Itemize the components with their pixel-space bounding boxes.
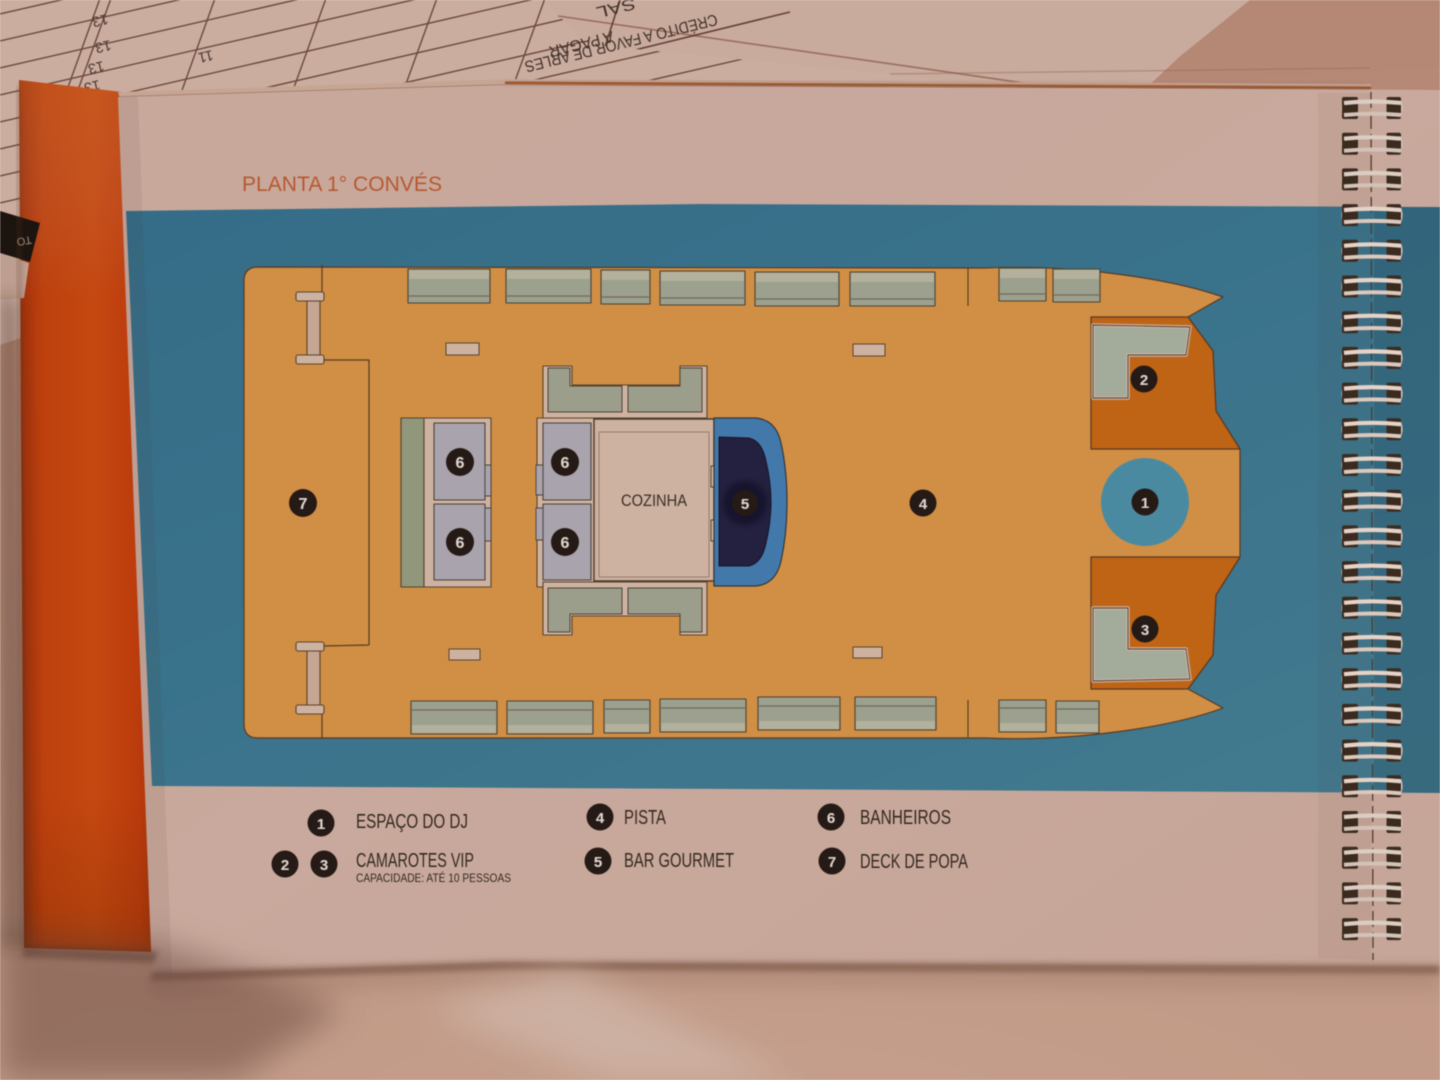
svg-text:7: 7 (828, 854, 836, 871)
svg-text:3: 3 (320, 857, 328, 874)
svg-text:5: 5 (741, 496, 749, 513)
svg-text:6: 6 (456, 455, 465, 472)
svg-text:6: 6 (456, 535, 465, 552)
svg-text:1: 1 (317, 816, 325, 833)
svg-text:5: 5 (594, 854, 602, 871)
svg-text:6: 6 (561, 455, 570, 472)
svg-text:4: 4 (919, 496, 928, 513)
svg-text:4: 4 (596, 810, 605, 827)
svg-text:2: 2 (281, 857, 289, 874)
svg-text:3: 3 (1141, 622, 1149, 639)
svg-text:1: 1 (1141, 495, 1149, 512)
svg-text:6: 6 (561, 535, 570, 552)
svg-text:2: 2 (1140, 372, 1148, 389)
svg-text:6: 6 (827, 810, 835, 827)
svg-text:7: 7 (299, 496, 308, 513)
